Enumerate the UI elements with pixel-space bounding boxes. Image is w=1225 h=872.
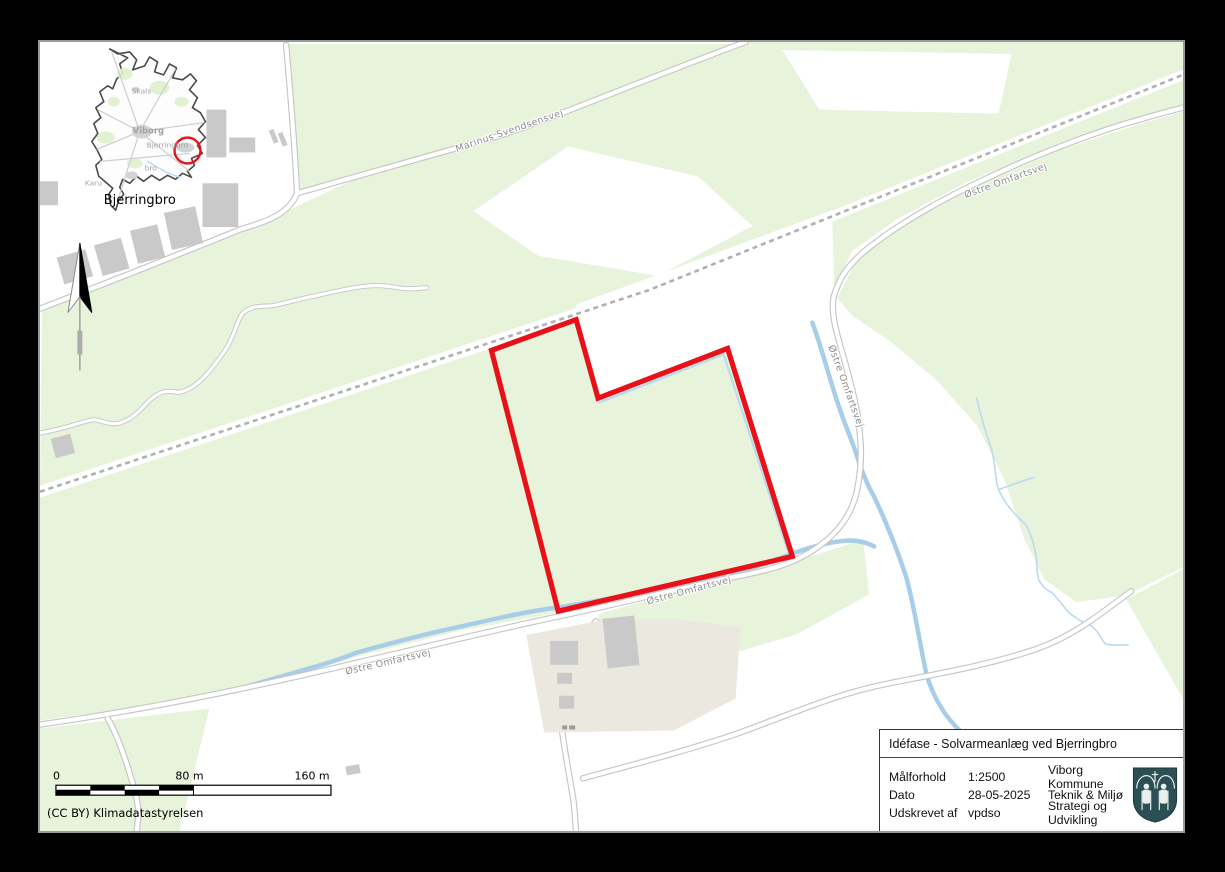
farm-parcel <box>526 616 740 733</box>
inset-map: Skals Viborg Bjerringbro bro Karu Bjerri… <box>85 49 206 210</box>
inset-place-label: Bjerringbro <box>104 193 176 208</box>
info-org-line1: Viborg Kommune <box>1048 763 1132 791</box>
info-value-date: 28-05-2025 <box>968 788 1048 802</box>
inset-label-bjerringbro: Bjerringbro <box>147 140 189 149</box>
scale-tick-0: 0 <box>53 769 60 782</box>
attribution-text: (CC BY) Klimadatastyrelsen <box>47 806 203 820</box>
inset-label-skals: Skals <box>132 87 152 96</box>
map-canvas: Marinus Svendsensvej Østre Omfartsvej Øs… <box>38 40 1185 833</box>
basemap-svg: Marinus Svendsensvej Østre Omfartsvej Øs… <box>40 42 1183 831</box>
info-box-title: Idéfase - Solvarmeanlæg ved Bjerringbro <box>880 730 1184 758</box>
info-value-scale: 1:2500 <box>968 770 1048 784</box>
viborg-coat-of-arms-icon <box>1132 767 1178 823</box>
info-label-scale: Målforhold <box>889 770 968 784</box>
scale-tick-80: 80 m <box>175 769 203 782</box>
inset-label-karup: Karu <box>85 178 102 187</box>
page-background: Marinus Svendsensvej Østre Omfartsvej Øs… <box>0 0 1225 872</box>
info-box: Idéfase - Solvarmeanlæg ved Bjerringbro … <box>879 729 1185 833</box>
inset-label-bro: bro <box>145 163 158 172</box>
scale-tick-160: 160 m <box>295 769 330 782</box>
info-label-printby: Udskrevet af <box>889 806 968 820</box>
info-org-line3: Strategi og Udvikling <box>1048 799 1132 827</box>
info-label-date: Dato <box>889 788 968 802</box>
inset-label-viborg: Viborg <box>133 126 164 136</box>
info-value-printby: vpdso <box>968 806 1048 820</box>
